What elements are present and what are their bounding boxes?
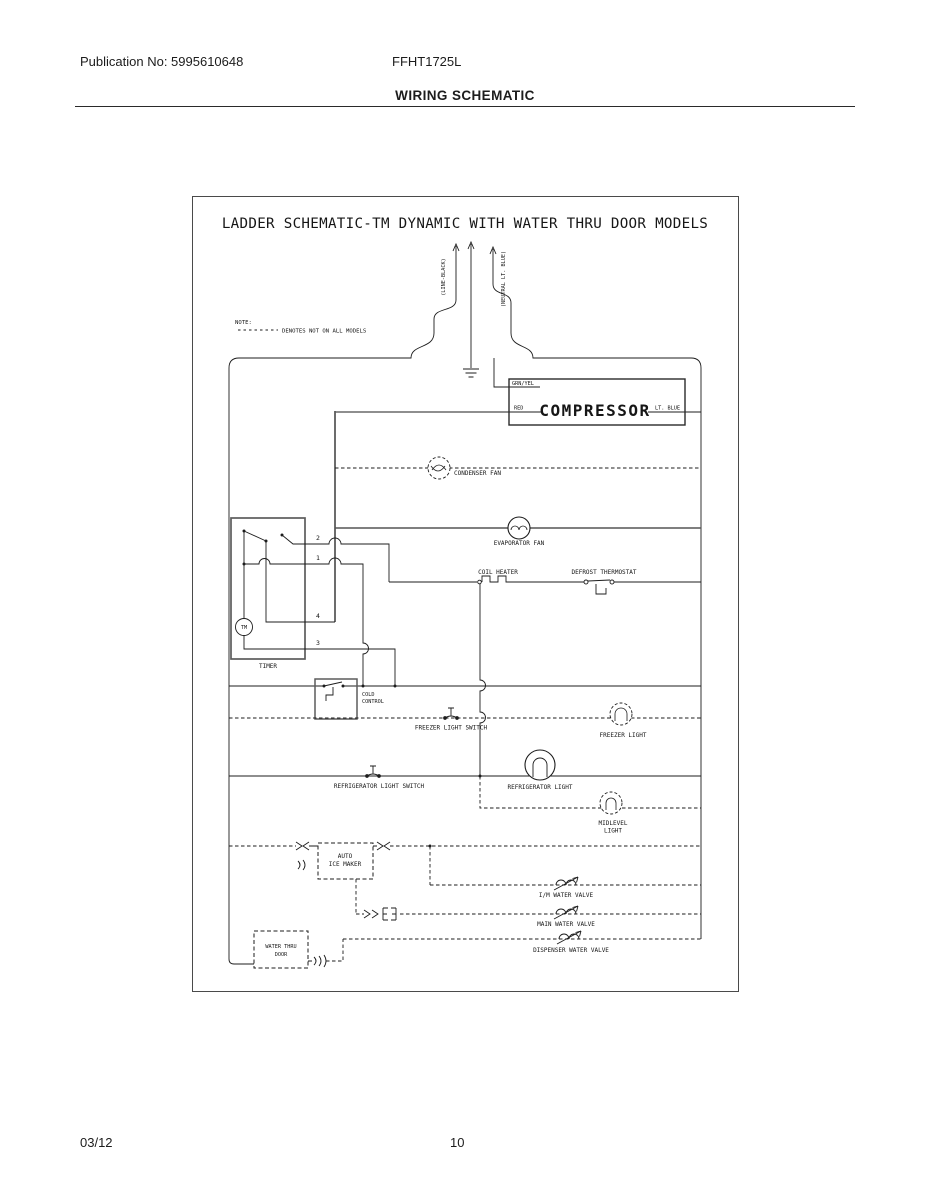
publication-number: Publication No: 5995610648 (80, 54, 243, 69)
coil-heater-label: COIL HEATER (478, 569, 518, 576)
ice-maker-junction-dot (429, 845, 432, 848)
ice-maker-connector-icon (298, 860, 305, 870)
ice-maker-label-2: ICE MAKER (329, 861, 362, 868)
refrigerator-light-switch-label: REFRIGERATOR LIGHT SWITCH (334, 783, 425, 790)
main-valve-connector-icon (383, 908, 396, 920)
freezer-light-label: FREEZER LIGHT (600, 732, 647, 739)
schematic-frame: LADDER SCHEMATIC-TM DYNAMIC WITH WATER T… (192, 196, 739, 992)
compressor-label: COMPRESSOR (539, 401, 650, 420)
timer-t4-wire (266, 541, 335, 622)
ground-symbol-icon (463, 369, 479, 377)
cold-control-bracket (326, 687, 333, 701)
dispenser-valve-coil-icon (557, 931, 581, 944)
header-rule (75, 106, 855, 107)
timer-label: TIMER (259, 663, 277, 670)
cold-control-label-1: COLD (362, 692, 375, 698)
terminal-4-label: 4 (316, 612, 320, 620)
note-label: NOTE: (235, 320, 252, 326)
im-valve-label: I/M WATER VALVE (539, 892, 594, 899)
main-valve-label: MAIN WATER VALVE (537, 921, 595, 928)
water-valve-rows (308, 877, 701, 967)
grn-yel-label: GRN/YEL (512, 381, 534, 387)
main-valve-connector-chevrons (364, 910, 378, 918)
refrigerator-light-label: REFRIGERATOR LIGHT (507, 784, 572, 791)
freezer-light-icon (610, 703, 632, 725)
timer-contact-dots (243, 530, 284, 566)
water-thru-door-label-2: DOOR (275, 952, 288, 958)
defrost-thermostat-terminal-left (584, 580, 588, 584)
refrigerator-light-icon (525, 750, 555, 780)
terminal-3-label: 3 (316, 639, 320, 647)
section-title: WIRING SCHEMATIC (75, 88, 855, 103)
defrost-thermostat-terminal-right (610, 580, 614, 584)
midlevel-light-label-2: LIGHT (604, 828, 622, 835)
ice-maker-label-1: AUTO (338, 853, 353, 860)
timer-box (231, 518, 305, 659)
manual-page: Publication No: 5995610648 FFHT1725L WIR… (0, 0, 927, 1200)
water-thru-door-label-1: WATER THRU (265, 944, 296, 950)
coil-heater-resistor-icon (482, 576, 514, 582)
condenser-fan-motor-icon (428, 457, 450, 479)
terminal-2-label: 2 (316, 534, 320, 542)
cold-control-blade (324, 682, 342, 686)
defrost-thermostat-bracket (596, 584, 606, 594)
footer-page-number: 10 (450, 1135, 464, 1150)
cold-control-label-2: CONTROL (362, 699, 384, 705)
model-number: FFHT1725L (392, 54, 461, 69)
footer-date: 03/12 (80, 1135, 113, 1150)
freezer-light-switch-label: FREEZER LIGHT SWITCH (415, 725, 488, 732)
defrost-thermostat-blade (588, 580, 610, 581)
water-thru-door-connector-icon (308, 955, 326, 967)
neutral-label: (NEUTRAL LT. BLUE) (501, 251, 507, 307)
evaporator-fan-label: EVAPORATOR FAN (494, 540, 545, 547)
cold-control-row (229, 682, 701, 701)
timer-motor-label: TM (241, 625, 247, 631)
red-label: RED (514, 406, 523, 412)
ladder-schematic: LADDER SCHEMATIC-TM DYNAMIC WITH WATER T… (193, 197, 738, 991)
main-valve-coil-icon (554, 906, 578, 919)
dispenser-valve-row (326, 939, 701, 961)
cold-control-box (315, 679, 357, 719)
lt-blue-label: LT. BLUE (655, 406, 680, 412)
line-black-label: (LINE-BLACK) (441, 258, 447, 295)
note-text: DENOTES NOT ON ALL MODELS (282, 329, 366, 335)
terminal-1-label: 1 (316, 554, 320, 562)
defrost-row (389, 576, 701, 594)
power-rails (229, 242, 701, 964)
coil-heater-terminal (478, 580, 482, 584)
schematic-title: LADDER SCHEMATIC-TM DYNAMIC WITH WATER T… (222, 216, 708, 232)
midlevel-light-label-1: MIDLEVEL (599, 820, 628, 827)
midlevel-light-branch (480, 776, 701, 808)
lights-feed-wire (480, 584, 486, 776)
ice-maker-row (229, 842, 701, 914)
defrost-thermostat-label: DEFROST THERMOSTAT (571, 569, 636, 576)
midlevel-light-icon (600, 792, 622, 814)
dispenser-valve-label: DISPENSER WATER VALVE (533, 947, 609, 954)
im-valve-coil-icon (554, 877, 578, 890)
condenser-fan-label: CONDENSER FAN (454, 470, 501, 477)
timer-switch-blade (244, 531, 266, 541)
